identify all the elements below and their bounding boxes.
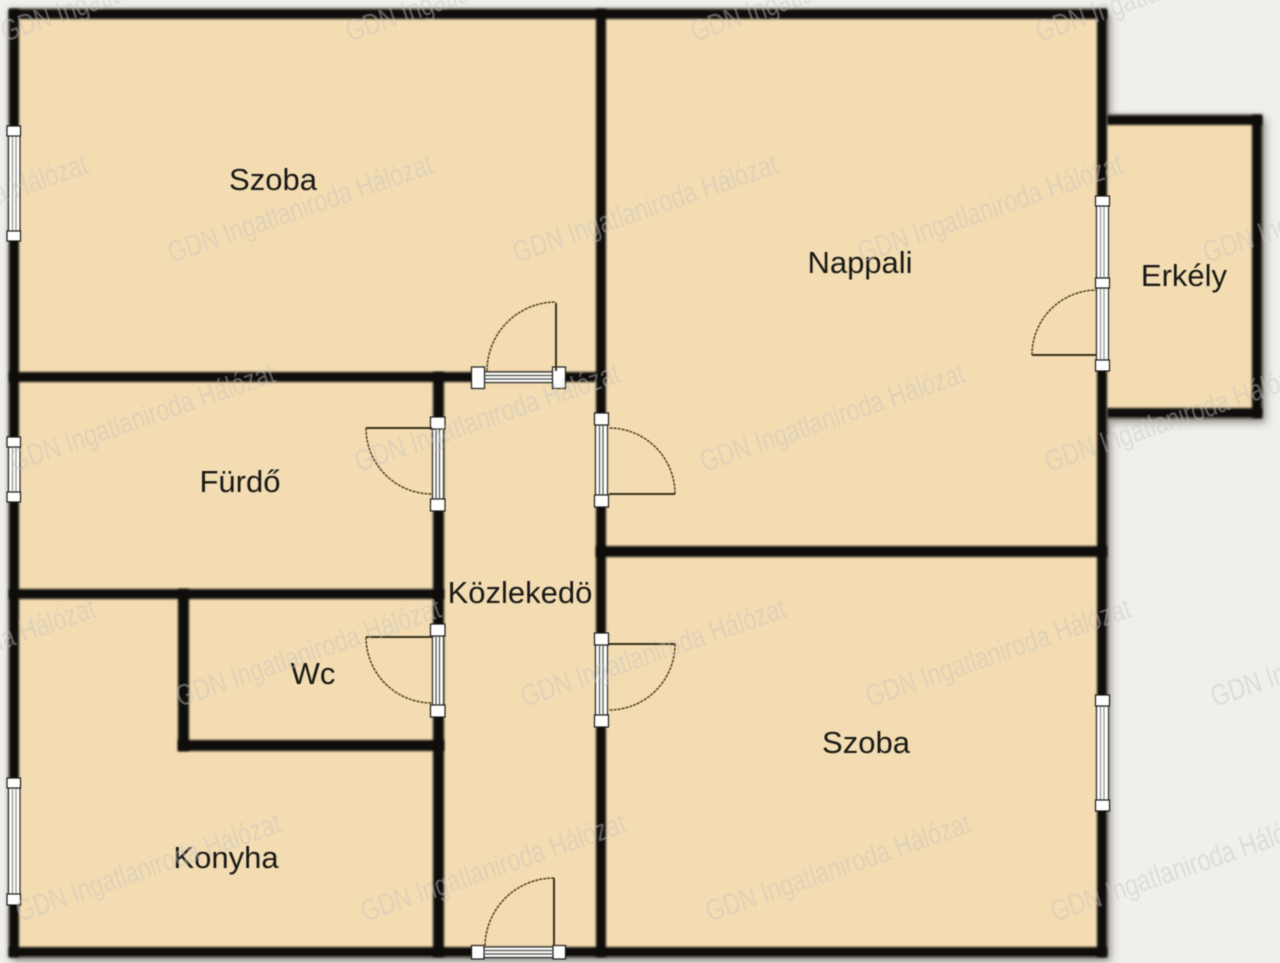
- svg-text:Közlekedö: Közlekedö: [448, 575, 593, 610]
- svg-text:Fürdő: Fürdő: [200, 464, 281, 499]
- svg-text:Szoba: Szoba: [822, 725, 911, 760]
